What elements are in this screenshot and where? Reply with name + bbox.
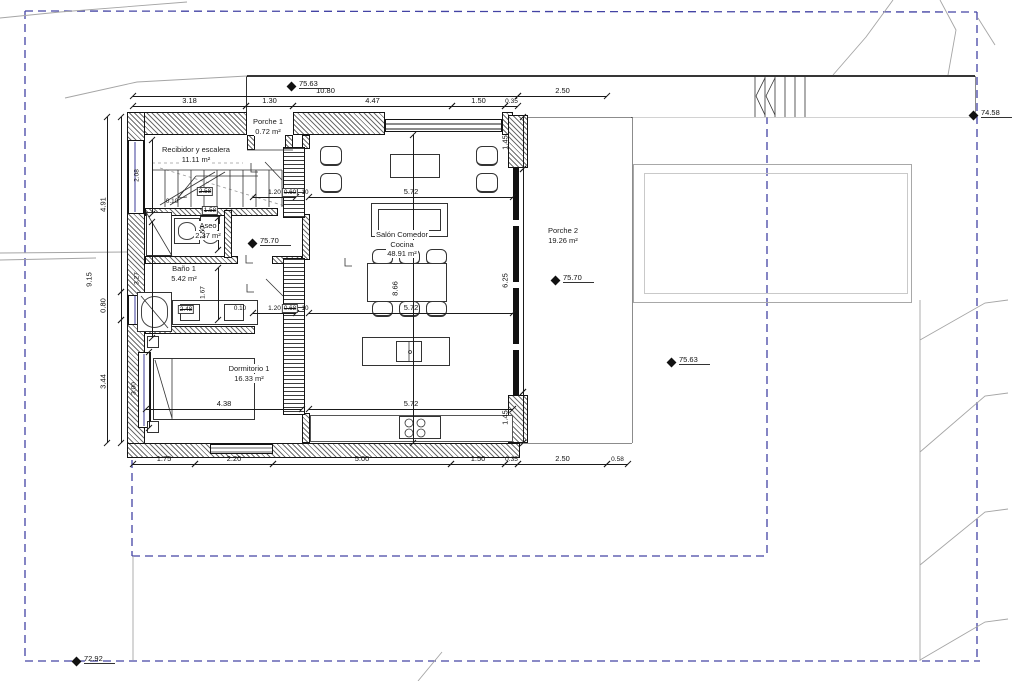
- room-label: Porche 10.72 m²: [193, 117, 343, 136]
- dimension-line: [273, 464, 451, 465]
- line-th: [756, 96, 765, 115]
- line-th: [766, 78, 775, 96]
- room-area: 16.33 m²: [233, 374, 265, 383]
- room-area: 5.42 m²: [170, 274, 197, 283]
- dimension-label: 5.72: [389, 399, 433, 408]
- dimension-line: [133, 464, 195, 465]
- level-value: 75.70: [563, 273, 594, 283]
- dimension-line: [121, 292, 122, 320]
- dimension-line: [195, 464, 273, 465]
- dimension-label: 0.80: [99, 284, 108, 328]
- dimension-label: 1.75: [142, 454, 186, 463]
- dimension-label: 6.25: [501, 258, 510, 302]
- room-area: 48.91 m²: [386, 249, 418, 258]
- line-th: [766, 96, 775, 115]
- dimension-line: [246, 106, 293, 107]
- dimension-line: [149, 352, 150, 428]
- room-name: Porche 1: [252, 117, 284, 126]
- room-label: Porche 219.26 m²: [488, 226, 638, 245]
- room-name: Porche 2: [547, 226, 579, 235]
- dimension-label: 9.15: [85, 258, 94, 302]
- dimension-label-small: 0.10: [166, 198, 178, 205]
- room-name: Salón Comedor: [375, 230, 429, 239]
- dimension-line: [293, 106, 452, 107]
- room-area: 2.37 m²: [194, 231, 221, 240]
- dimension-label: 0.35: [490, 456, 534, 463]
- dimension-label: 3.27: [134, 257, 141, 301]
- room-area: 19.26 m²: [547, 236, 579, 245]
- dimension-line: [523, 117, 524, 169]
- dimension-label: 2.20: [212, 454, 256, 463]
- room-label: Recibidor y escalera11.11 m²: [121, 145, 271, 164]
- line-th: [141, 296, 168, 328]
- dimension-label-small: 0.68: [282, 304, 298, 313]
- dimension-line: [309, 197, 513, 198]
- line-th: [178, 197, 187, 198]
- dimension-line: [146, 409, 302, 410]
- dimension-line: [133, 106, 246, 107]
- dimension-label-small: 10: [301, 189, 308, 196]
- room-label: Baño 15.42 m²: [109, 264, 259, 283]
- corner-mark: [247, 284, 254, 292]
- room-label: Dormitorio 116.33 m²: [174, 364, 324, 383]
- dimension-line: [253, 197, 296, 198]
- level-value: 72.92: [84, 654, 115, 664]
- burner-circle: [417, 419, 425, 427]
- dimension-label: 2.50: [541, 86, 585, 95]
- room-name: Recibidor y escalera: [161, 145, 231, 154]
- dimension-label: 1.45: [501, 395, 510, 439]
- burner-circle: [405, 429, 413, 437]
- dimension-line: [523, 392, 524, 443]
- dimension-label: 5.00: [340, 454, 384, 463]
- dimension-label: 5.72: [389, 187, 433, 196]
- dimension-line: [121, 320, 122, 443]
- dimension-label: 2.50: [541, 454, 585, 463]
- line-th: [756, 78, 765, 96]
- dimension-label-small: 10: [301, 305, 308, 312]
- dimension-label: 1.67: [200, 271, 207, 315]
- level-value: 75.70: [260, 236, 291, 246]
- level-value: 75.63: [299, 79, 330, 89]
- level-value: 75.63: [679, 355, 710, 365]
- burner-circle: [405, 419, 413, 427]
- dimension-label: 3.00: [131, 367, 138, 411]
- room-name: Cocina: [389, 240, 414, 249]
- line-th: [266, 279, 283, 296]
- dimension-line: [505, 106, 518, 107]
- dimension-label: 1.30: [248, 96, 292, 105]
- dimension-label-small: 0.60: [282, 188, 298, 197]
- floor-plan-canvas: 10.802.503.181.304.471.500.351.752.205.0…: [0, 0, 1013, 681]
- dimension-label-small: 1.58: [202, 206, 218, 215]
- dimension-line: [523, 169, 524, 392]
- room-area: 11.11 m²: [181, 155, 211, 164]
- dimension-line: [518, 96, 607, 97]
- dimension-label: 1.50: [200, 211, 207, 255]
- dimension-label-small: 2.48: [178, 305, 194, 314]
- dimension-label-small: 0.10: [234, 305, 246, 312]
- dimension-line: [607, 464, 628, 465]
- dimension-label: 2.08: [134, 154, 141, 198]
- dimension-line: [452, 106, 505, 107]
- dimension-label: 1.45: [501, 121, 510, 165]
- dimension-line: [451, 464, 505, 465]
- dimension-line: [505, 464, 518, 465]
- burner-circle: [417, 429, 425, 437]
- dimension-label: 0.58: [596, 456, 640, 463]
- dimension-label: 8.66: [391, 267, 400, 311]
- dimension-label: 4.91: [99, 182, 108, 226]
- dimension-line: [413, 135, 414, 443]
- dimension-label: 4.38: [202, 399, 246, 408]
- room-name: Baño 1: [171, 264, 197, 273]
- room-name: Dormitorio 1: [228, 364, 271, 373]
- dimension-label-small: 2.58: [197, 187, 213, 196]
- dimension-label: 3.18: [168, 96, 212, 105]
- room-label: Salón ComedorCocina48.91 m²: [327, 230, 477, 259]
- dimension-label: 4.47: [351, 96, 395, 105]
- dimension-line: [518, 464, 607, 465]
- corner-mark: [345, 258, 352, 266]
- level-value: 74.58: [981, 108, 1012, 118]
- dimension-line: [309, 313, 513, 314]
- dimension-label: 0.35: [490, 98, 534, 105]
- dimension-line: [309, 409, 513, 410]
- room-area: 0.72 m²: [254, 127, 281, 136]
- corner-mark: [246, 255, 253, 263]
- dimension-line: [253, 313, 296, 314]
- dimension-label: 3.44: [99, 359, 108, 403]
- line-th: [265, 162, 282, 180]
- corner-mark: [251, 163, 258, 172]
